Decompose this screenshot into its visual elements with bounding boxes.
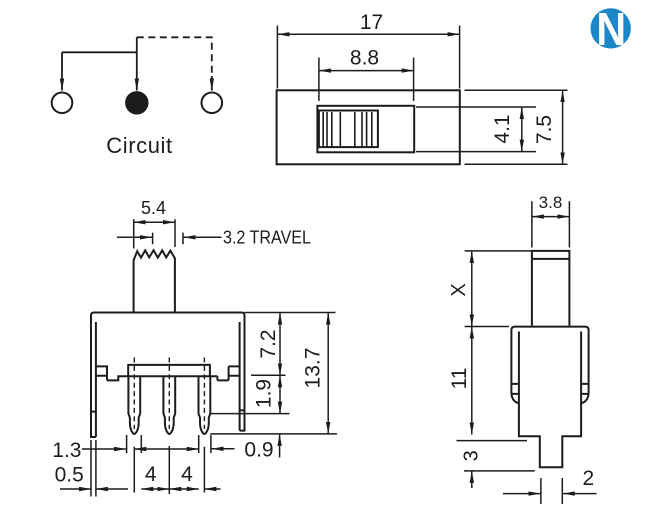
svg-text:0.9: 0.9 xyxy=(244,439,273,462)
svg-text:Circuit: Circuit xyxy=(106,133,173,158)
svg-text:17: 17 xyxy=(360,11,383,34)
svg-text:1.3: 1.3 xyxy=(52,439,81,462)
svg-text:4: 4 xyxy=(181,463,193,486)
svg-text:4: 4 xyxy=(145,463,157,486)
svg-text:X: X xyxy=(448,283,470,296)
svg-text:2: 2 xyxy=(583,467,595,490)
svg-text:5.4: 5.4 xyxy=(141,198,166,218)
svg-text:13.7: 13.7 xyxy=(302,348,325,389)
svg-text:7.2: 7.2 xyxy=(257,329,280,358)
svg-text:0.5: 0.5 xyxy=(55,464,84,487)
svg-text:4.1: 4.1 xyxy=(491,114,514,143)
svg-text:3.8: 3.8 xyxy=(539,193,563,212)
svg-text:3.2 TRAVEL: 3.2 TRAVEL xyxy=(223,227,311,248)
svg-text:8.8: 8.8 xyxy=(350,46,379,69)
svg-text:N: N xyxy=(596,4,626,56)
svg-text:7.5: 7.5 xyxy=(533,115,556,144)
svg-text:11: 11 xyxy=(448,368,471,390)
svg-text:3: 3 xyxy=(460,450,482,461)
svg-text:1.9: 1.9 xyxy=(253,379,276,408)
